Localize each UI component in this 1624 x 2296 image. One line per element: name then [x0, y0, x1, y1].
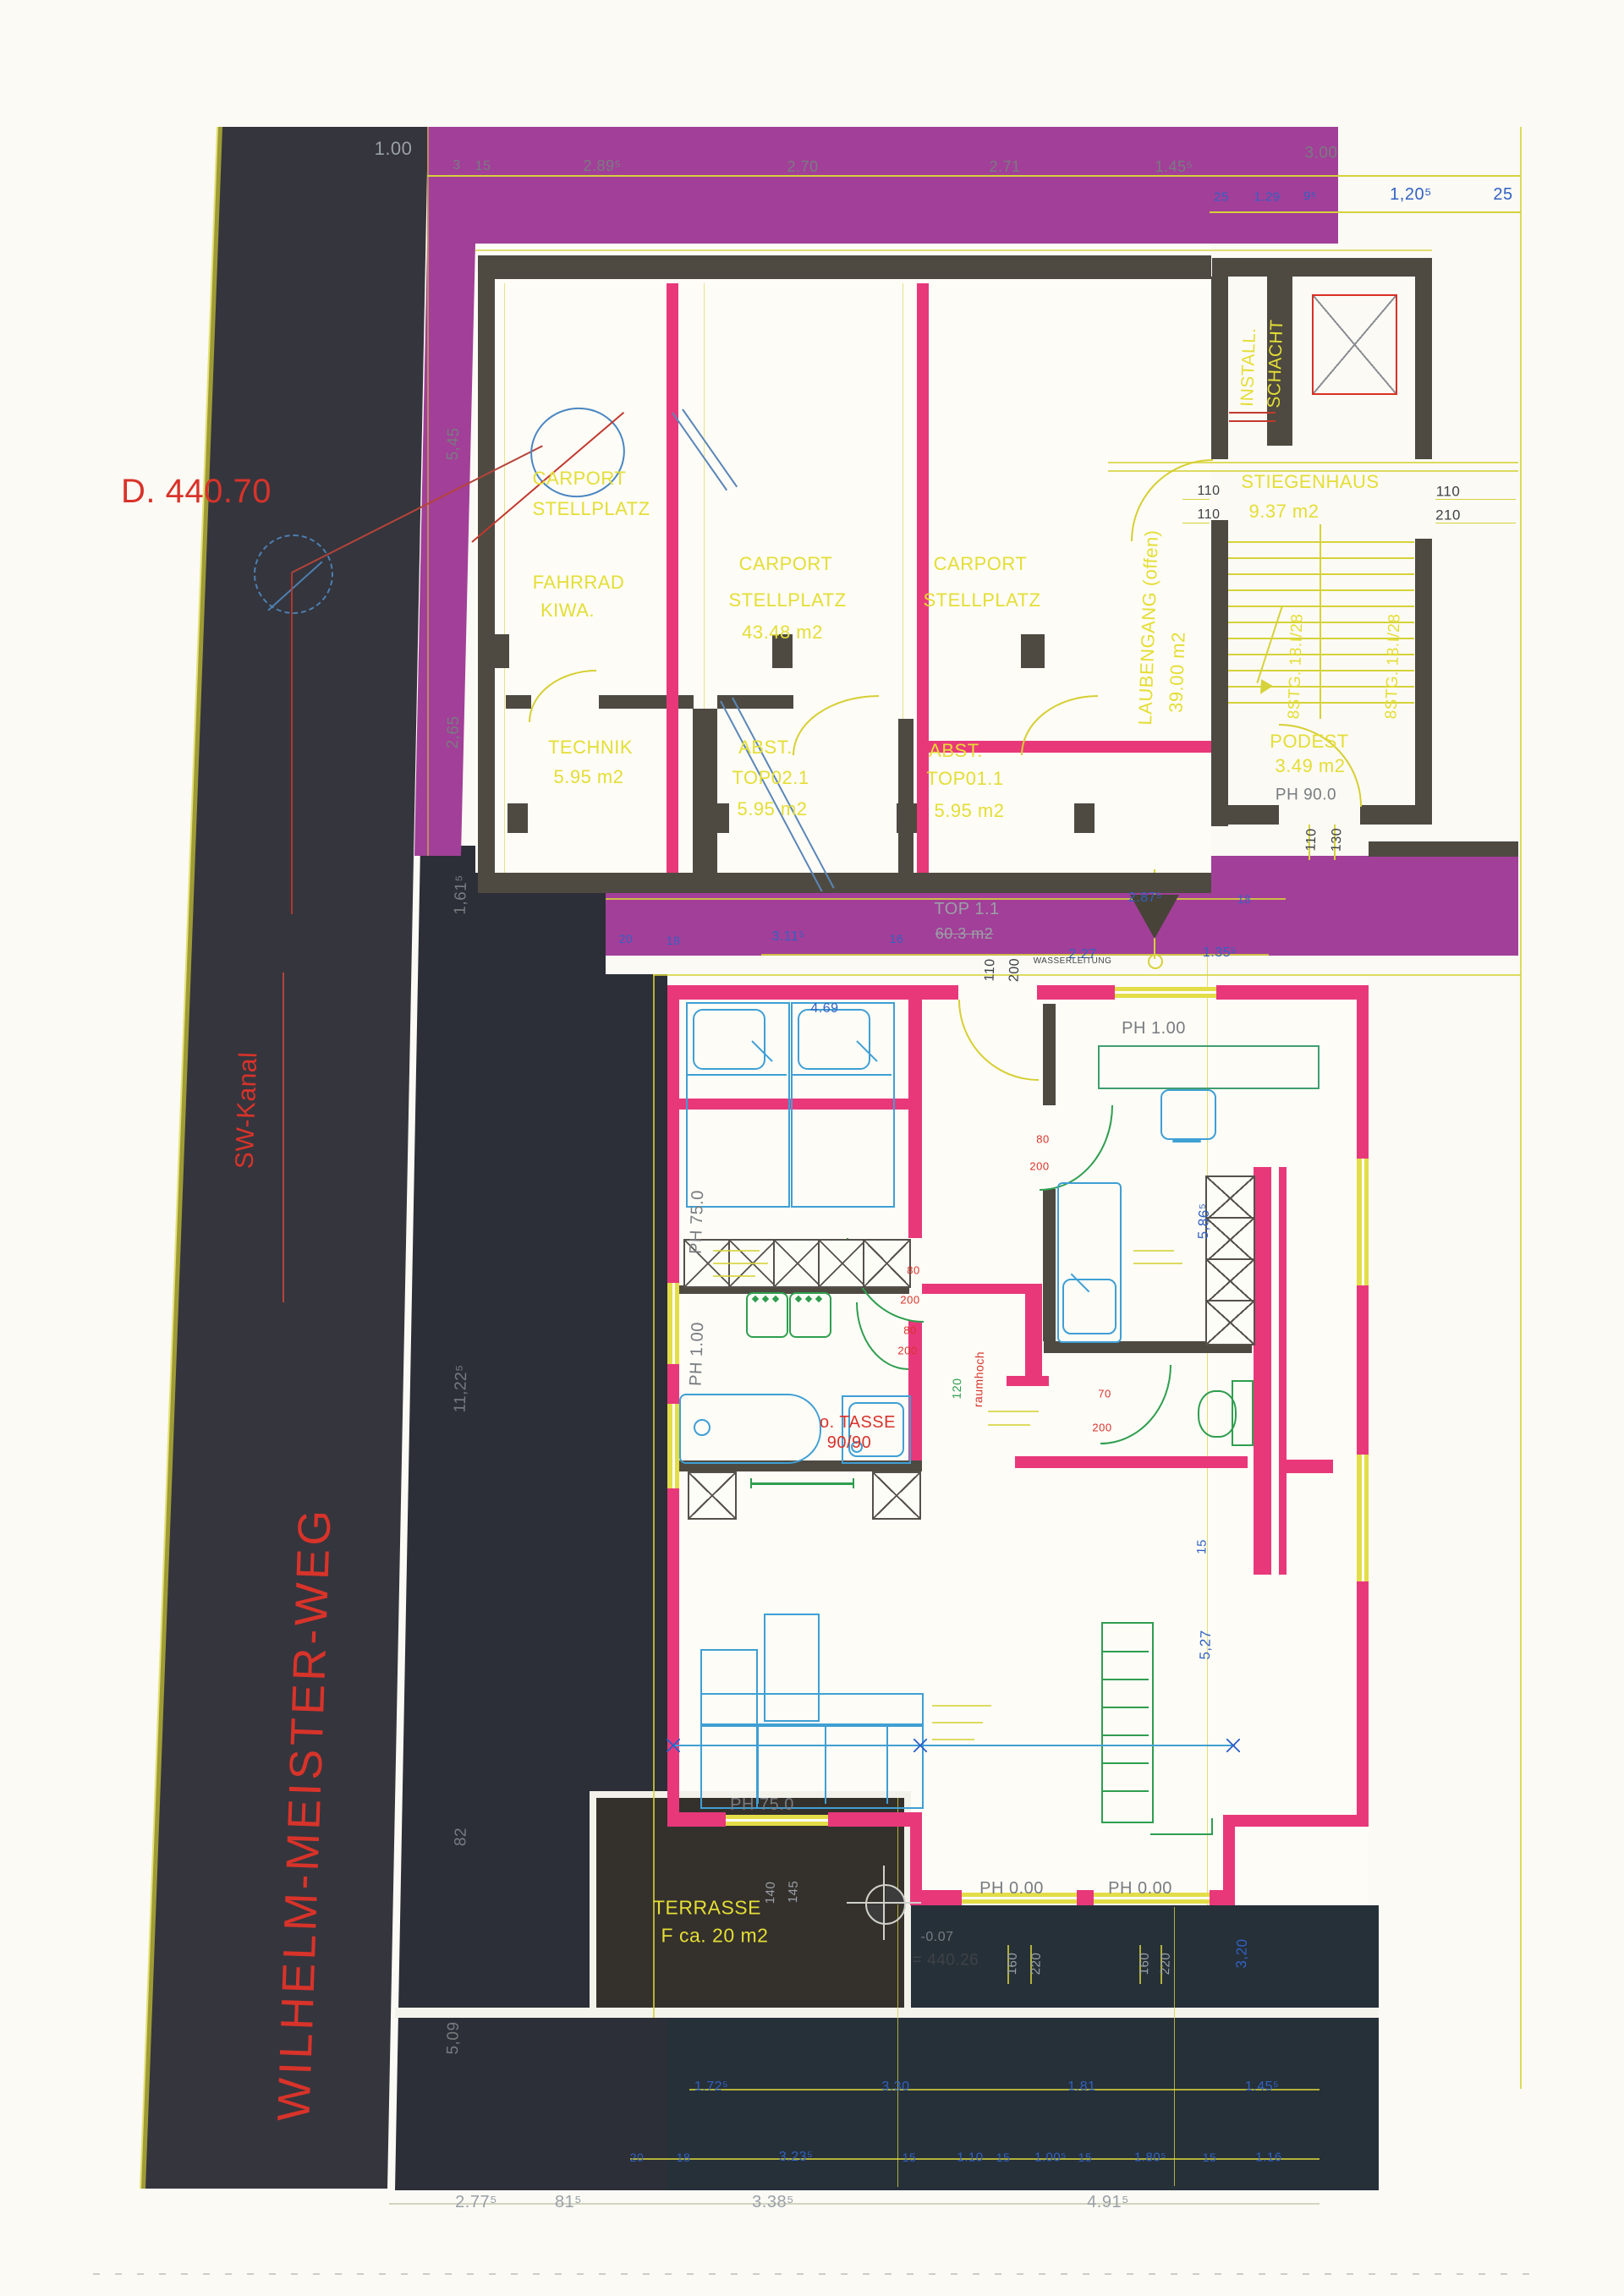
- level-note: -0.07: [921, 1931, 954, 1944]
- door-dim: 70: [1098, 1389, 1111, 1400]
- dim: 16: [890, 933, 904, 945]
- dim-top: 25: [1214, 191, 1229, 204]
- door-dim: 80: [907, 1265, 919, 1276]
- height-note: PH 75.0: [688, 1190, 707, 1254]
- dim: 110: [1436, 485, 1461, 499]
- dim: 15: [1195, 1539, 1209, 1554]
- dim-left: 2,65: [445, 715, 462, 749]
- door-dim: 200: [1029, 1161, 1049, 1172]
- dim: 145: [787, 1880, 800, 1903]
- dim-top: 2.70: [787, 159, 818, 174]
- stair-label: 8STG. 18.I/28: [1286, 613, 1305, 719]
- dim-left: 5,09: [445, 2021, 462, 2055]
- dim: 18: [1237, 893, 1252, 905]
- dim-bottom: 1.80⁵: [1134, 2151, 1166, 2164]
- dim-bottom: 1.00⁵: [1034, 2151, 1067, 2164]
- dim: 5,86⁵: [1196, 1203, 1211, 1239]
- height-note: PH 1.00: [688, 1322, 707, 1386]
- elevation-label: D. 440.70: [121, 474, 272, 508]
- room-label: TOP01.1: [926, 770, 1003, 788]
- room-label: PODEST: [1270, 732, 1348, 751]
- unit-area: 60.3 m2: [935, 926, 994, 941]
- room-label: TOP02.1: [732, 769, 809, 787]
- room-area: 5.95 m2: [554, 768, 624, 786]
- floorplan-canvas: 1.003152.89⁵2.702.711.45⁵3.00251.299⁵1,2…: [0, 0, 1624, 2296]
- dim-bottom: 1.10: [957, 2151, 983, 2164]
- dim-bottom: 1.45⁵: [1245, 2080, 1279, 2094]
- room-label: TECHNIK: [548, 738, 633, 757]
- dim: 20: [619, 933, 634, 945]
- canal-label: SW-Kanal: [233, 1051, 262, 1169]
- dim: 120: [951, 1378, 963, 1399]
- dim: 110: [984, 958, 998, 982]
- dim: 3.11⁵: [771, 930, 804, 944]
- dim-left: 11,22⁵: [453, 1364, 470, 1413]
- room-label: KIWA.: [540, 601, 595, 620]
- dim-bottom: 20: [630, 2151, 645, 2163]
- dim-top: 1,20⁵: [1390, 186, 1432, 203]
- annotation-layer: 1.003152.89⁵2.702.711.45⁵3.00251.299⁵1,2…: [0, 0, 1624, 2296]
- dim-bottom: 3.30: [881, 2080, 909, 2094]
- dim-total: 3.38⁵: [752, 2194, 794, 2211]
- dim-left: 5,45: [445, 427, 462, 461]
- dim-top: 2.71: [989, 159, 1020, 174]
- note: raumhoch: [972, 1351, 985, 1408]
- room-area: 39.00 m2: [1166, 632, 1188, 713]
- dim: 1.35⁵: [1203, 946, 1237, 960]
- room-label: STELLPLATZ: [728, 591, 846, 610]
- room-area: 43.48 m2: [742, 623, 823, 642]
- dim: 160: [1138, 1952, 1151, 1975]
- room-area: 3.49 m2: [1276, 757, 1346, 775]
- room-label: CARPORT: [934, 555, 1028, 573]
- room-area: 5.95 m2: [935, 802, 1005, 820]
- level-note: = 440.26: [913, 1953, 979, 1969]
- room-area: 5.95 m2: [738, 800, 808, 819]
- terrasse-area: F ca. 20 m2: [661, 1926, 769, 1946]
- dim-top: 2.89⁵: [584, 158, 622, 173]
- dim: 18: [667, 934, 681, 946]
- dim-bottom: 15: [903, 2151, 917, 2163]
- dim-top: 1.29: [1254, 191, 1280, 204]
- room-label: ABST.: [738, 738, 793, 757]
- dim: 110: [1305, 828, 1319, 852]
- dim-left: 82: [453, 1827, 469, 1847]
- room-label: ABST.: [929, 742, 983, 760]
- dim-bottom: 15: [1078, 2151, 1093, 2163]
- dim-total: 4.91⁵: [1087, 2194, 1129, 2211]
- dim-total: 2.77⁵: [455, 2194, 497, 2211]
- street-name: WILHELM-MEISTER-WEG: [271, 1506, 337, 2122]
- dim-top: 25: [1493, 186, 1512, 203]
- room-label: FAHRRAD: [533, 573, 625, 592]
- height-note: PH 0.00: [979, 1880, 1044, 1897]
- dim: 2.87⁵: [1128, 891, 1162, 905]
- room-label: CARPORT: [533, 469, 627, 488]
- dim-top: 3: [453, 159, 460, 173]
- dim: 130: [1330, 828, 1345, 852]
- dim: 140: [764, 1881, 777, 1904]
- dim-bottom: 15: [1203, 2151, 1217, 2163]
- dim: 5,27: [1198, 1630, 1213, 1660]
- dim-bottom: 18: [677, 2151, 691, 2163]
- height-note: PH 90.0: [1276, 787, 1336, 803]
- room-label: STIEGENHAUS: [1241, 473, 1379, 491]
- height-note: PH 1.00: [1122, 1020, 1186, 1037]
- terrasse-label: TERRASSE: [653, 1899, 761, 1918]
- room-label: LAUBENGANG (offen): [1136, 529, 1161, 726]
- dim-top: 1.00: [375, 140, 413, 158]
- dim-top: 1.45⁵: [1155, 159, 1193, 174]
- dim: 110: [1197, 485, 1220, 498]
- door-dim: 80: [1036, 1134, 1049, 1145]
- utility-note: WASSERLEITUNG: [1034, 957, 1112, 966]
- dim-top: 9⁵: [1303, 190, 1317, 203]
- dim: 3,20: [1234, 1938, 1249, 1969]
- dim-total: 81⁵: [555, 2194, 582, 2211]
- room-label: INSTALL.: [1238, 327, 1259, 407]
- dim: 220: [1029, 1952, 1043, 1975]
- dim: 210: [1435, 508, 1461, 523]
- room-label: SCHACHT: [1265, 319, 1287, 408]
- dim: 4.69: [810, 1002, 838, 1016]
- door-dim: 200: [897, 1345, 917, 1356]
- room-label: CARPORT: [739, 555, 833, 573]
- dim-bottom: 15: [996, 2151, 1011, 2163]
- height-note: PH 75.0: [730, 1796, 794, 1813]
- dim: 160: [1006, 1952, 1019, 1975]
- dim: 200: [1008, 958, 1023, 983]
- dim-left: 1,61⁵: [453, 874, 470, 915]
- dim-bottom: 1.72⁵: [694, 2080, 728, 2094]
- door-dim: 200: [900, 1295, 919, 1306]
- shower-note: o. TASSE: [820, 1414, 896, 1431]
- door-dim: 200: [1092, 1422, 1111, 1433]
- height-note: PH 0.00: [1108, 1880, 1172, 1897]
- shower-note: 90/90: [827, 1434, 872, 1451]
- dim-bottom: 3.23⁵: [779, 2151, 813, 2164]
- stair-label: 8STG. 18.I/28: [1383, 613, 1402, 719]
- dim-bottom: 1.81: [1067, 2080, 1095, 2094]
- room-label: STELLPLATZ: [532, 500, 650, 518]
- dim-top: 15: [475, 160, 491, 173]
- dim: 110: [1197, 508, 1220, 522]
- dim-top: 3.00: [1305, 145, 1338, 162]
- dim-bottom: 1.16: [1255, 2151, 1281, 2164]
- door-dim: 80: [903, 1325, 916, 1336]
- room-area: 9.37 m2: [1249, 502, 1319, 521]
- dim: 220: [1159, 1952, 1172, 1975]
- unit-label: TOP 1.1: [934, 901, 999, 918]
- room-label: STELLPLATZ: [923, 591, 1040, 610]
